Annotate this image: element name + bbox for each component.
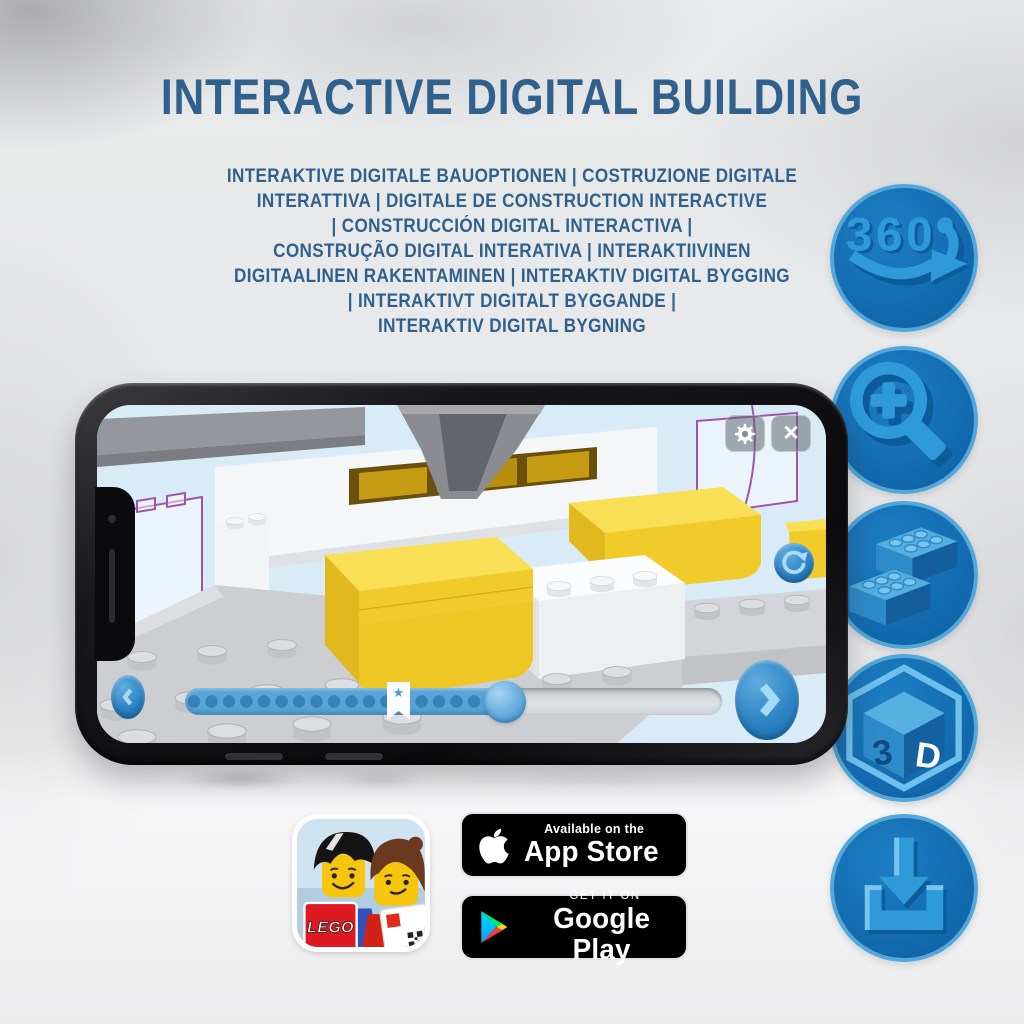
close-icon: ✕ xyxy=(782,421,800,446)
rotate-icon xyxy=(777,546,811,580)
chevron-right-icon xyxy=(752,679,782,721)
next-step-button[interactable] xyxy=(735,660,799,740)
chevron-left-icon xyxy=(120,685,137,709)
speaker-slit xyxy=(109,549,115,623)
subtitle-line: INTERAKTIVE DIGITALE BAUOPTIONEN | COSTR… xyxy=(51,164,973,189)
app-store-badge[interactable]: Available on the App Store xyxy=(460,812,688,878)
phone-reflection xyxy=(150,767,690,791)
previous-step-button[interactable] xyxy=(111,675,145,719)
google-play-badge[interactable]: GET IT ON Google Play xyxy=(460,894,688,960)
phone-mockup: ✕ ★ xyxy=(75,383,848,765)
lego-logo-text: LEGO xyxy=(307,920,354,937)
settings-button[interactable] xyxy=(725,415,765,452)
app-store-tagline: Available on the xyxy=(524,822,664,837)
google-play-name: Google Play xyxy=(524,904,679,966)
cube-d-label: D xyxy=(913,735,943,777)
phone-notch xyxy=(95,487,135,661)
progress-fill xyxy=(185,688,515,715)
feature-bricks xyxy=(830,501,978,649)
lego-app-icon[interactable]: LEGO xyxy=(292,814,430,952)
apple-icon xyxy=(476,825,512,866)
feature-360-rotation: 360º 360º xyxy=(830,184,978,332)
build-progress-bar[interactable]: ★ xyxy=(185,688,722,715)
phone-screen: ✕ ★ xyxy=(97,405,826,743)
zoom-in-icon xyxy=(834,350,974,490)
page-title: INTERACTIVE DIGITAL BUILDING xyxy=(77,68,947,126)
camera-dot xyxy=(108,515,116,523)
progress-handle[interactable] xyxy=(484,681,526,723)
google-play-icon xyxy=(476,906,512,948)
lego-app-art: LEGO xyxy=(297,819,430,952)
feature-zoom xyxy=(830,346,978,494)
360-rotation-icon: 360º 360º xyxy=(834,188,974,328)
google-play-tagline: GET IT ON xyxy=(524,889,686,904)
gear-icon xyxy=(733,422,757,446)
app-store-name: App Store xyxy=(524,837,659,868)
feature-3d-view: 3 D xyxy=(830,654,978,802)
lego-bricks-icon xyxy=(834,505,974,645)
star-icon: ★ xyxy=(393,682,405,704)
promo-image: INTERACTIVE DIGITAL BUILDING INTERAKTIVE… xyxy=(0,0,1024,1024)
antenna-line xyxy=(325,753,383,760)
3d-cube-icon: 3 D xyxy=(834,658,974,798)
download-icon xyxy=(834,818,974,958)
close-button[interactable]: ✕ xyxy=(771,415,811,452)
rotate-button[interactable] xyxy=(774,543,814,583)
feature-download xyxy=(830,814,978,962)
antenna-line xyxy=(225,753,283,760)
